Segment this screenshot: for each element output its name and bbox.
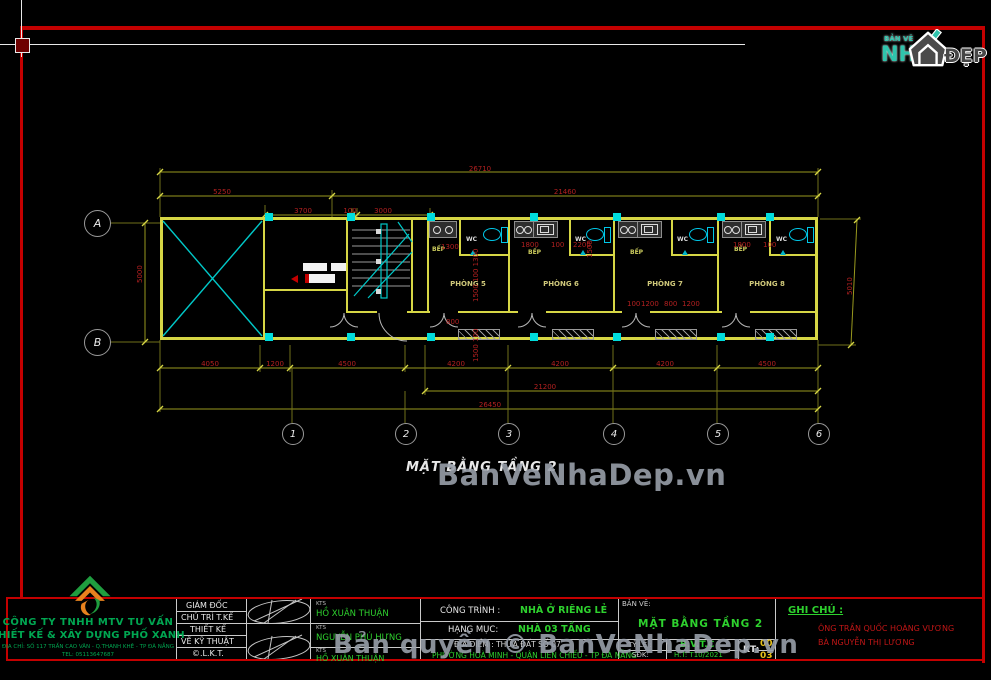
dim-text: 4200 — [648, 360, 682, 368]
watermark-copyright: Bản quyền © BanVeNhaDep.vn — [333, 630, 798, 660]
floor-drain-icon — [682, 250, 688, 255]
grid-bubble-A: A — [84, 210, 111, 237]
dim-text: 26710 — [463, 165, 497, 173]
grid-bubble-4: 4 — [603, 423, 625, 445]
dim-text: 1200 — [641, 300, 659, 308]
kitchen-label: BẾP — [528, 249, 541, 256]
note-line: BÀ NGUYỄN THỊ LƯƠNG — [818, 639, 915, 647]
wall-wc-v — [569, 217, 571, 256]
dim-text: 5250 — [205, 188, 239, 196]
grid-bubble-1: 1 — [282, 423, 304, 445]
dim-text: 100 — [551, 241, 564, 249]
selection-grip[interactable] — [717, 333, 725, 341]
dimension-lines — [145, 172, 857, 409]
room-label: PHÒNG 8 — [749, 280, 785, 288]
wall-corridor-seg — [407, 311, 430, 313]
dim-text: 4500 — [750, 360, 784, 368]
selection-grip[interactable] — [427, 213, 435, 221]
dim-text: 4500 — [330, 360, 364, 368]
dim-text-vertical: 1500 100 — [472, 329, 480, 362]
crosshair-horizontal — [0, 44, 745, 45]
wall-void-right — [263, 217, 265, 338]
dim-text: 4200 — [543, 360, 577, 368]
sheet-label: BẢN VẼ: — [622, 601, 651, 608]
dim-text-vertical: 5010 — [846, 277, 854, 295]
red-arrow-icon — [291, 275, 298, 283]
selection-grip[interactable] — [766, 213, 774, 221]
wall-wc-v — [671, 217, 673, 256]
stove-icon — [619, 222, 638, 237]
dim-text-vertical: 1500 100 1300 — [472, 249, 480, 302]
dim-text-vertical: 1500 — [586, 240, 594, 258]
notes-label: GHI CHÚ : — [788, 606, 843, 616]
wall-corridor-seg — [546, 311, 622, 313]
wall-corridor-seg — [650, 311, 722, 313]
dim-text: 1300 — [441, 243, 459, 251]
wall-wc-v — [769, 217, 771, 256]
sink-icon — [534, 222, 557, 237]
sink-icon — [742, 222, 765, 237]
extension-lines — [110, 168, 861, 423]
wall-party-1 — [508, 217, 510, 313]
selection-grip[interactable] — [717, 213, 725, 221]
dim-text-vertical: 5000 — [136, 265, 144, 283]
dim-text: 21460 — [548, 188, 582, 196]
staircase — [352, 222, 412, 298]
selection-grip[interactable] — [265, 213, 273, 221]
selection-grip[interactable] — [613, 333, 621, 341]
dim-text: 21200 — [528, 383, 562, 391]
wall-wc-h — [459, 254, 509, 256]
note-line: ÔNG TRẦN QUỐC HOÀNG VƯƠNG — [818, 625, 954, 633]
dim-text: 100 — [763, 241, 776, 249]
wall-wc-h — [769, 254, 816, 256]
room-label: PHÒNG 7 — [647, 280, 683, 288]
toilet-icon — [482, 226, 508, 242]
role-label: CHỦ TRÌ T.KẾ — [181, 614, 233, 622]
plan-linework — [0, 0, 991, 680]
selection-grip[interactable] — [347, 333, 355, 341]
stove-icon — [515, 222, 534, 237]
wall-stair-right — [411, 217, 413, 313]
dim-text: 1200 — [682, 300, 700, 308]
role-label: ©.L.K.T. — [192, 650, 224, 658]
wall-corridor-seg — [458, 311, 518, 313]
selection-grip[interactable] — [766, 333, 774, 341]
dim-text: 1200 — [258, 360, 292, 368]
kitchen-counter — [722, 221, 766, 238]
selection-grip[interactable] — [265, 333, 273, 341]
dim-text: 4050 — [193, 360, 227, 368]
selection-grip[interactable] — [613, 213, 621, 221]
selection-grip[interactable] — [347, 213, 355, 221]
selection-grip[interactable] — [427, 333, 435, 341]
project-value: NHÀ Ở RIÊNG LẺ — [520, 606, 607, 616]
window-hatch — [552, 329, 594, 340]
highlighted-text-block — [331, 263, 346, 271]
project-label: CÔNG TRÌNH : — [440, 607, 500, 616]
house-icon — [907, 29, 949, 69]
wall-west — [160, 217, 163, 340]
dim-text: 1800 — [521, 241, 539, 249]
dim-text: 3000 — [366, 207, 400, 215]
company-name-line1: CÔNG TY TNHH MTV TƯ VẤN — [3, 618, 174, 628]
wall-party-3 — [717, 217, 719, 313]
role-label: THIẾT KẾ — [190, 626, 226, 634]
wall-lobby-right — [346, 217, 348, 313]
floor-drain-icon — [780, 250, 786, 255]
dim-text: 1800 — [733, 241, 751, 249]
selection-grip[interactable] — [530, 213, 538, 221]
role-label: VẼ KỸ THUẬT — [181, 638, 234, 646]
person-name: HỒ XUÂN THUẬN — [316, 610, 389, 619]
role-label: GIÁM ĐỐC — [186, 602, 228, 610]
toilet-icon — [688, 226, 714, 242]
window-hatch — [755, 329, 797, 340]
watermark-plan: BanVeNhaDep.vn — [437, 458, 726, 492]
sink-icon — [638, 222, 661, 237]
grid-bubble-B: B — [84, 329, 111, 356]
wall-wc-v — [459, 217, 461, 256]
dim-text: 4200 — [439, 360, 473, 368]
wall-lobby-south — [263, 289, 348, 291]
sheet-border-right — [982, 26, 985, 663]
wall-party-2 — [613, 217, 615, 313]
wc-label: WC — [776, 236, 787, 243]
company-name-line2: THIẾT KẾ & XÂY DỰNG PHỐ XANH — [0, 631, 185, 641]
brand-logo: BẢN VẼ NH ĐẸP — [873, 26, 985, 78]
sheet-border-top — [20, 26, 985, 30]
dim-text: 26450 — [473, 401, 507, 409]
dim-text: 800 — [446, 318, 459, 326]
kitchen-counter — [618, 221, 662, 238]
grid-bubble-5: 5 — [707, 423, 729, 445]
company-tel: TEL: 05113647687 — [62, 653, 114, 659]
kitchen-counter — [429, 221, 457, 238]
grid-bubble-2: 2 — [395, 423, 417, 445]
wall-wc-h — [671, 254, 718, 256]
highlighted-text-block — [305, 274, 335, 283]
grid-bubble-6: 6 — [808, 423, 830, 445]
room-label: PHÒNG 5 — [450, 280, 486, 288]
kitchen-label: BẾP — [630, 249, 643, 256]
selection-grip[interactable] — [530, 333, 538, 341]
stove-icon — [430, 222, 456, 237]
person-title: KTS — [316, 626, 326, 632]
dim-text: 800 — [664, 300, 677, 308]
room-label: PHÒNG 6 — [543, 280, 579, 288]
wall-east — [815, 217, 818, 340]
dim-text: 3700 — [286, 207, 320, 215]
window-hatch — [655, 329, 697, 340]
highlighted-text-block — [303, 263, 327, 271]
wall-corridor-seg — [750, 311, 817, 313]
grid-bubble-3: 3 — [498, 423, 520, 445]
sheet-border-left — [20, 26, 23, 598]
stove-icon — [723, 222, 742, 237]
dim-text: 100 — [627, 300, 640, 308]
person-title: KTS — [316, 602, 326, 608]
wc-label: WC — [466, 236, 477, 243]
kitchen-counter — [514, 221, 558, 238]
company-address: ĐỊA CHỈ: SỐ 117 TRẦN CAO VÂN - Q.THANH K… — [2, 645, 174, 651]
cad-sheet: BẢN VẼ NH ĐẸP — [0, 0, 991, 680]
toilet-icon — [788, 226, 814, 242]
cursor-pickbox[interactable] — [15, 38, 30, 53]
wall-corridor-seg — [346, 311, 377, 313]
void-cross — [163, 221, 262, 336]
brand-suffix-label: ĐẸP — [944, 47, 987, 66]
sheet-title: MẶT BẰNG TẦNG 2 — [638, 619, 763, 630]
wc-label: WC — [677, 236, 688, 243]
